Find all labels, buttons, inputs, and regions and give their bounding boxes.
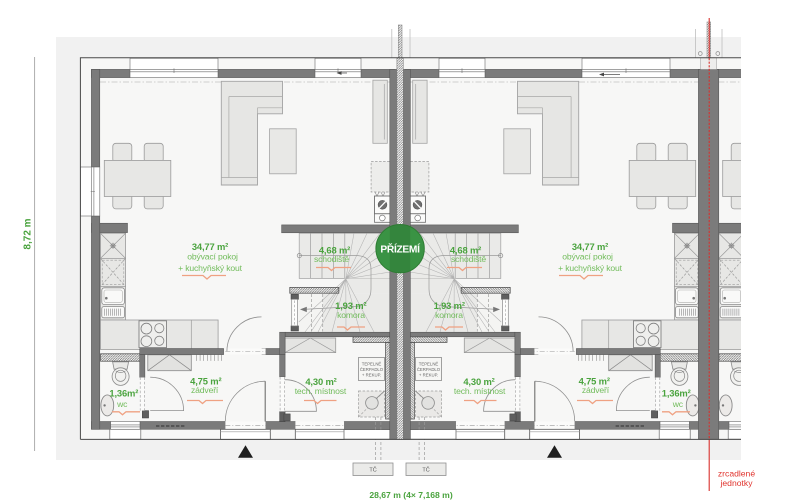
svg-text:TEPELNÉ: TEPELNÉ bbox=[419, 362, 439, 367]
svg-text:+ kuchyňský kout: + kuchyňský kout bbox=[178, 263, 243, 273]
svg-text:+ REKUP.: + REKUP. bbox=[419, 373, 438, 378]
svg-text:28,67 m (4× 7,168 m): 28,67 m (4× 7,168 m) bbox=[369, 490, 453, 500]
svg-text:ČERPADLO: ČERPADLO bbox=[417, 367, 441, 372]
svg-text:jednotky: jednotky bbox=[719, 478, 753, 488]
svg-text:PŘÍZEMÍ: PŘÍZEMÍ bbox=[380, 243, 421, 256]
svg-text:obývací pokoj: obývací pokoj bbox=[562, 252, 613, 262]
svg-text:1,36m²: 1,36m² bbox=[109, 387, 138, 398]
svg-text:schodiště: schodiště bbox=[451, 254, 486, 264]
svg-text:komora: komora bbox=[337, 310, 365, 320]
svg-text:8,72 m: 8,72 m bbox=[23, 218, 34, 249]
svg-text:tech. místnost: tech. místnost bbox=[454, 386, 506, 396]
svg-text:34,77 m²: 34,77 m² bbox=[572, 241, 608, 252]
svg-text:wc: wc bbox=[116, 399, 128, 409]
svg-text:komora: komora bbox=[435, 310, 463, 320]
svg-text:schodiště: schodiště bbox=[314, 254, 349, 264]
svg-text:TEPELNÉ: TEPELNÉ bbox=[362, 362, 382, 367]
svg-text:zádveří: zádveří bbox=[191, 385, 219, 395]
svg-text:TČ: TČ bbox=[369, 467, 376, 474]
svg-text:+ kuchyňský kout: + kuchyňský kout bbox=[558, 263, 623, 273]
svg-text:TČ: TČ bbox=[422, 467, 429, 474]
svg-text:obývací pokoj: obývací pokoj bbox=[187, 252, 238, 262]
svg-text:tech. místnost: tech. místnost bbox=[295, 386, 347, 396]
svg-text:zádveří: zádveří bbox=[582, 385, 610, 395]
svg-text:1,36m²: 1,36m² bbox=[662, 387, 691, 398]
svg-text:34,77 m²: 34,77 m² bbox=[192, 241, 228, 252]
svg-text:ČERPADLO: ČERPADLO bbox=[360, 367, 384, 372]
svg-text:wc: wc bbox=[672, 399, 684, 409]
svg-text:zrcadlené: zrcadlené bbox=[718, 469, 755, 479]
svg-text:+ REKUP.: + REKUP. bbox=[362, 373, 381, 378]
